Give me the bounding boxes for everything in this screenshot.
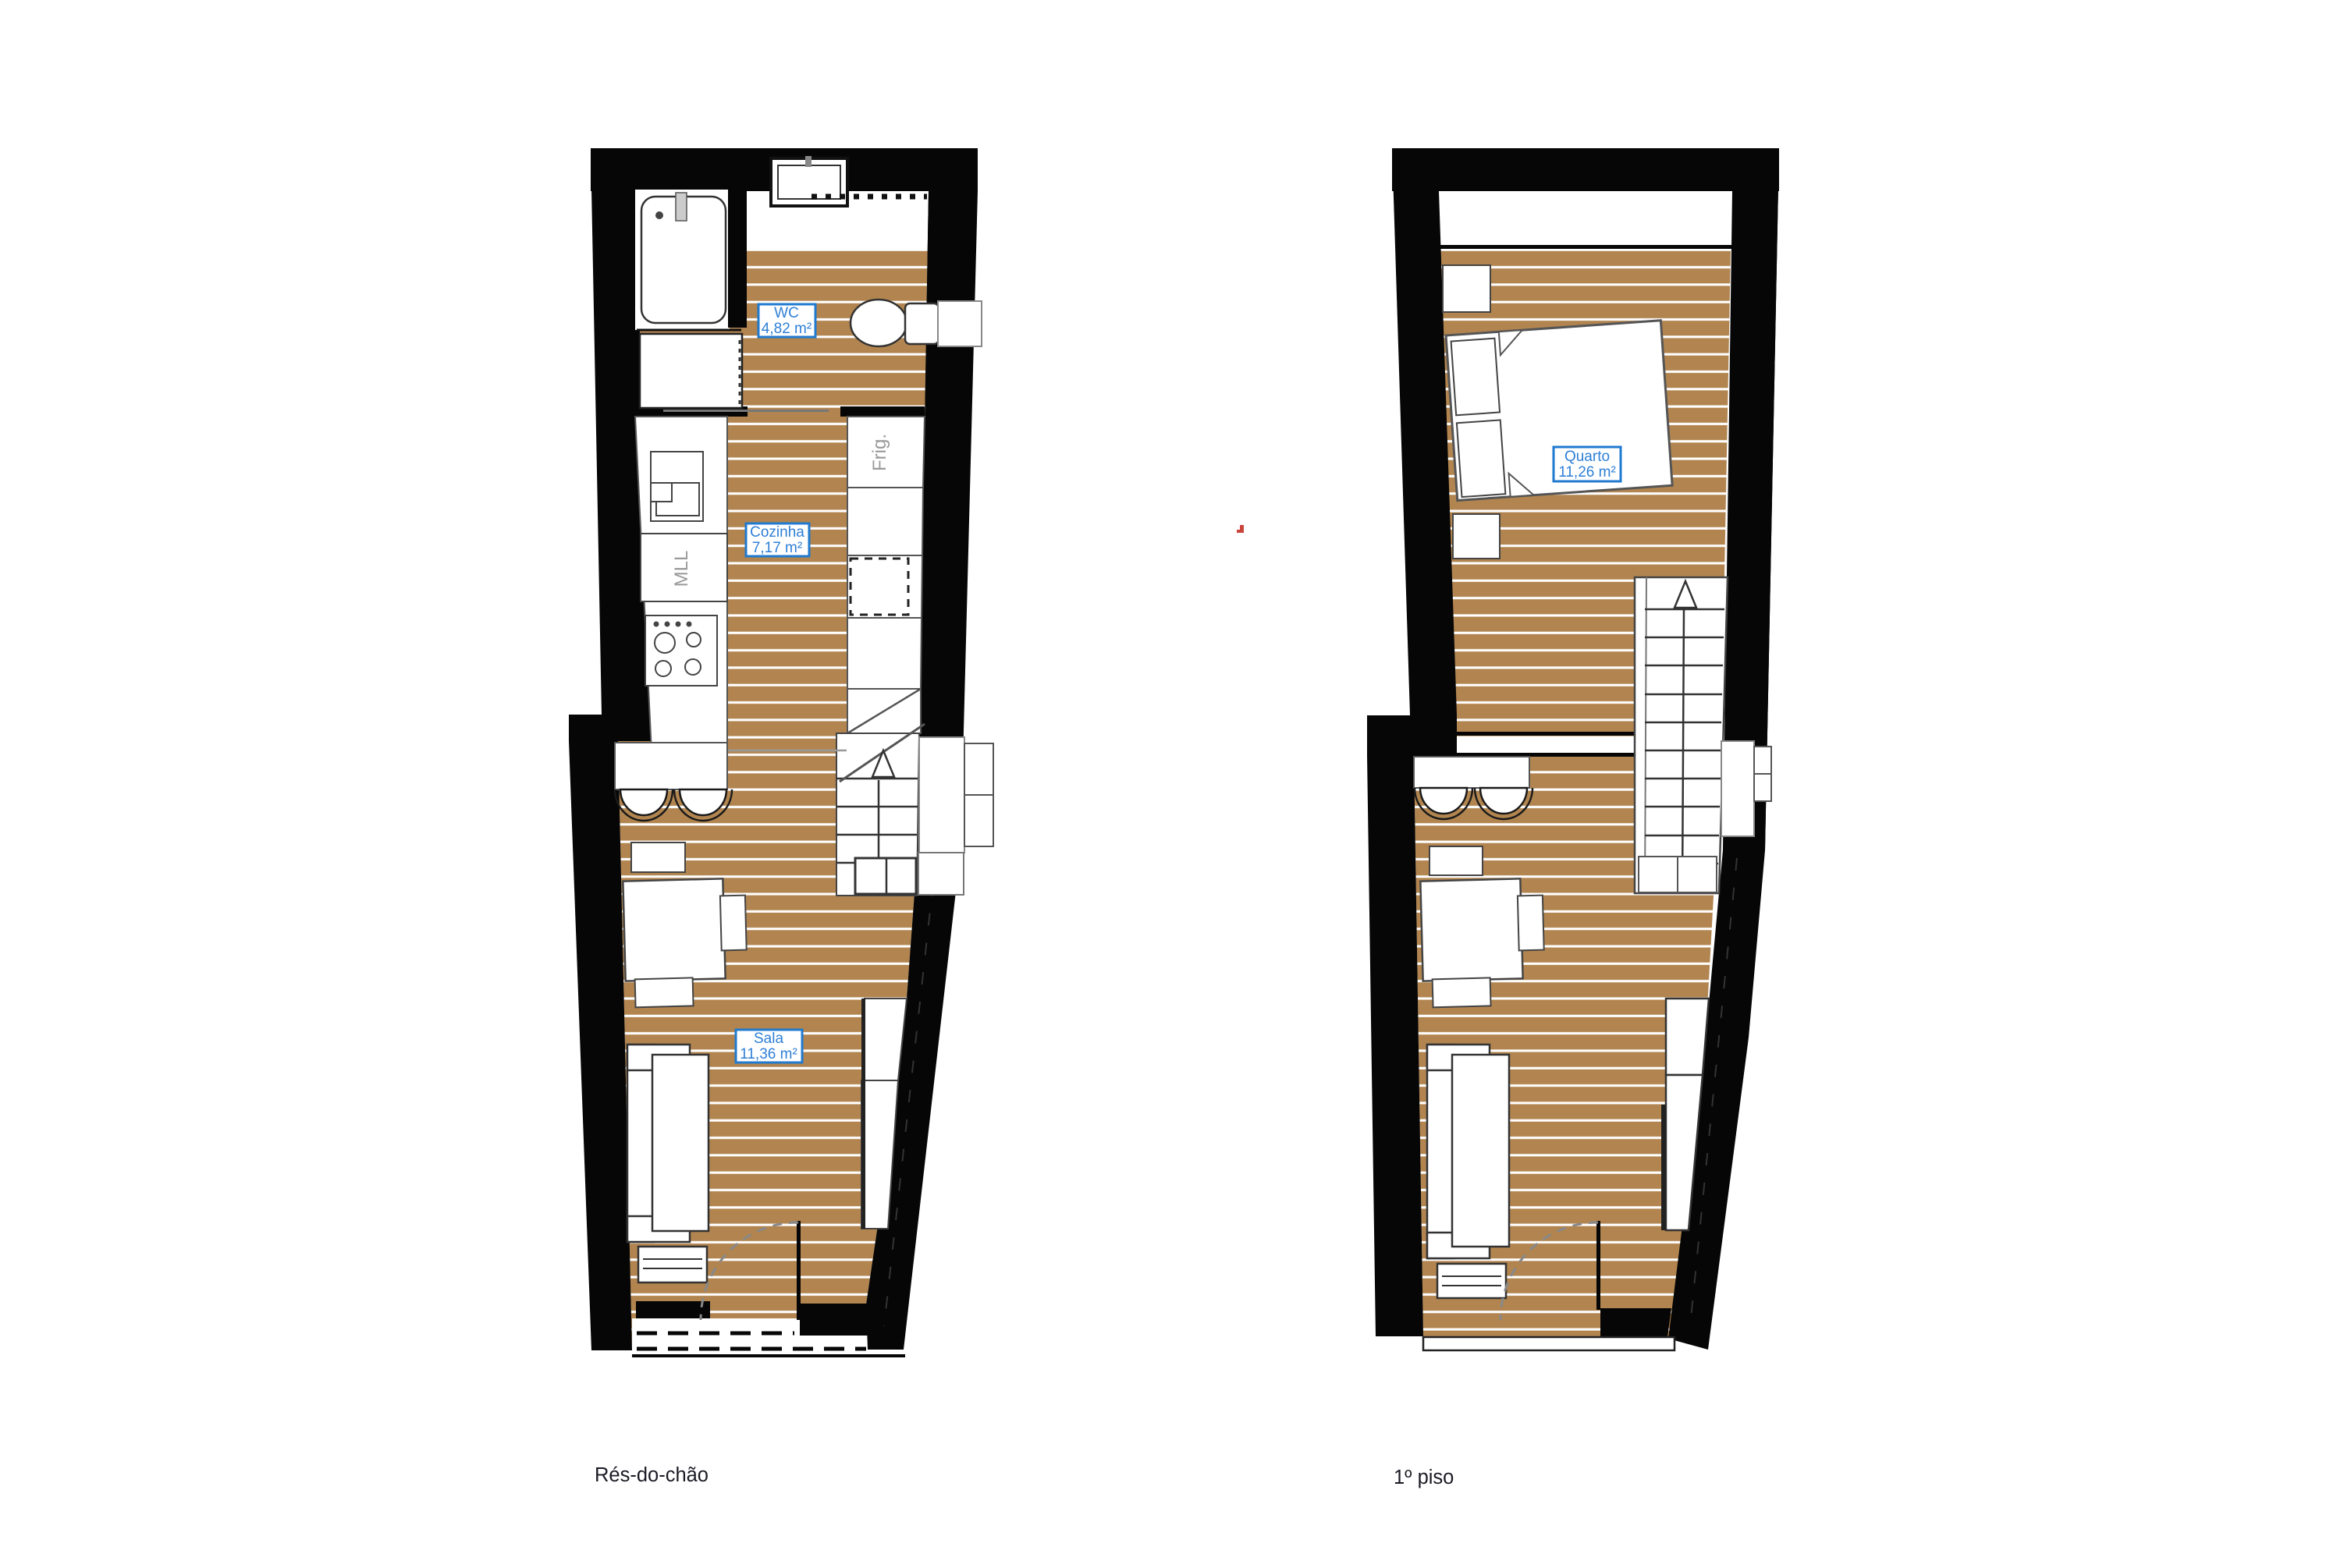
svg-text:11,26 m²: 11,26 m² — [1558, 464, 1616, 481]
svg-text:1º piso: 1º piso — [1394, 1467, 1454, 1488]
svg-text:11,36 m²: 11,36 m² — [740, 1046, 797, 1062]
svg-text:MLL: MLL — [671, 551, 692, 587]
svg-text:Quarto: Quarto — [1564, 449, 1610, 465]
svg-text:4,82 m²: 4,82 m² — [762, 321, 812, 337]
svg-text:7,17 m²: 7,17 m² — [752, 540, 802, 556]
svg-text:Cozinha: Cozinha — [750, 524, 804, 541]
svg-text:Rés-do-chão: Rés-do-chão — [595, 1464, 709, 1486]
svg-text:Sala: Sala — [754, 1031, 783, 1047]
svg-text:WC: WC — [774, 305, 799, 321]
svg-text:Frig.: Frig. — [869, 434, 890, 471]
